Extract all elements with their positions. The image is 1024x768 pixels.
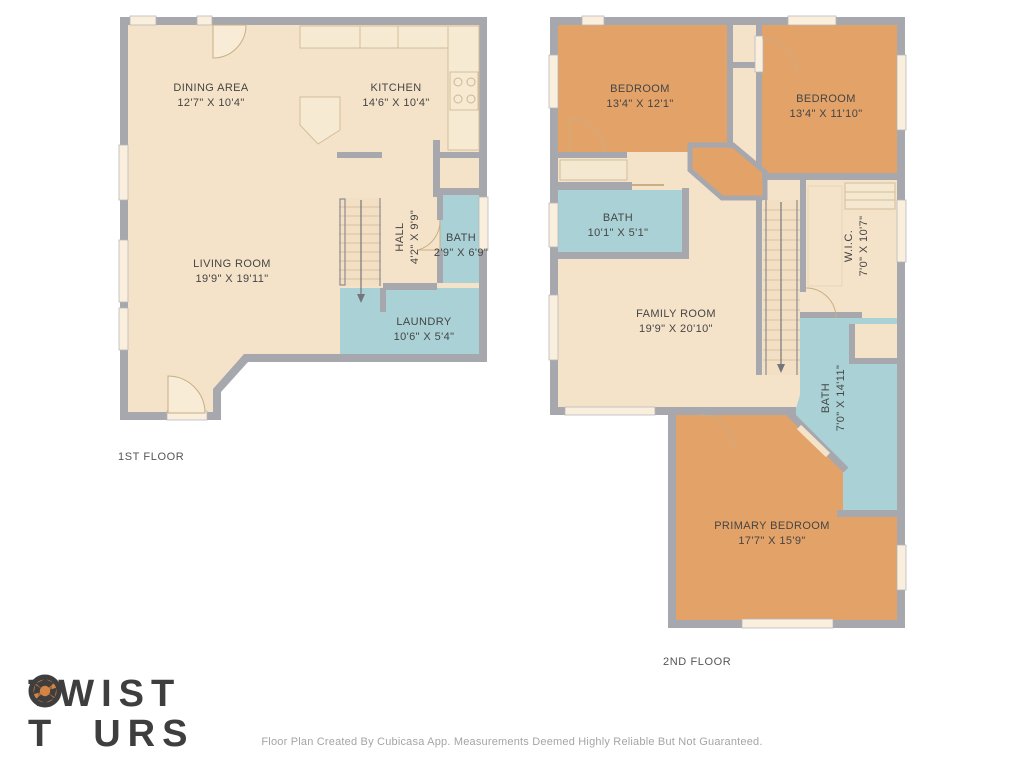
floor-plan-drawing <box>0 0 1024 768</box>
stairs-down-second-floor <box>763 200 800 375</box>
room-label-wic: W.I.C.7'0" X 10'7" <box>842 216 872 277</box>
second-floor-label: 2ND FLOOR <box>663 656 731 668</box>
logo-line-2: T <box>28 714 194 754</box>
room-label-bath-1st: BATH2'9" X 6'9" <box>434 231 488 261</box>
room-label-dining: DINING AREA12'7" X 10'4" <box>173 81 248 111</box>
room-label-laundry: LAUNDRY10'6" X 5'4" <box>394 315 455 345</box>
room-label-hall: HALL4'2" X 9'9" <box>393 210 423 264</box>
room-label-bedroom-1: BEDROOM13'4" X 12'1" <box>606 82 673 112</box>
room-label-bath-primary: BATH7'0" X 14'11" <box>819 365 849 432</box>
room-label-primary-bedroom: PRIMARY BEDROOM17'7" X 15'9" <box>714 519 830 549</box>
first-floor-plan <box>119 16 488 420</box>
room-label-family-room: FAMILY ROOM19'9" X 20'10" <box>636 307 716 337</box>
floorplan-page: { "floor1": { "label": "1ST FLOOR", "roo… <box>0 0 1024 768</box>
room-label-bath-upper: BATH10'1" X 5'1" <box>588 211 649 241</box>
room-label-kitchen: KITCHEN14'6" X 10'4" <box>362 81 429 111</box>
room-label-bedroom-2: BEDROOM13'4" X 11'10" <box>789 92 862 122</box>
room-label-living: LIVING ROOM19'9" X 19'11" <box>193 257 271 287</box>
disclaimer-text: Floor Plan Created By Cubicasa App. Meas… <box>0 736 1024 748</box>
first-floor-label: 1ST FLOOR <box>118 451 184 463</box>
